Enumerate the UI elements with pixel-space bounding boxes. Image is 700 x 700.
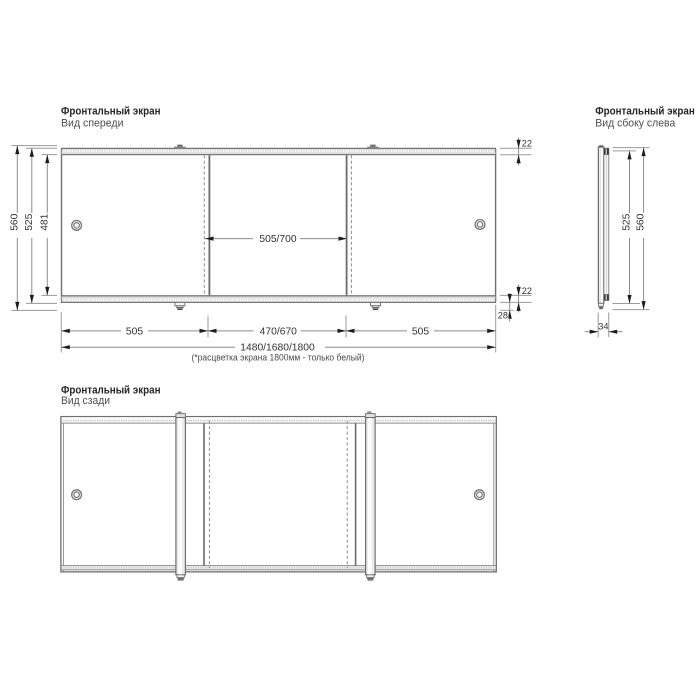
svg-text:505/700: 505/700 [259,234,296,245]
svg-text:34: 34 [598,322,608,332]
svg-text:28: 28 [498,311,508,321]
svg-text:505: 505 [126,326,143,337]
svg-text:525: 525 [622,213,633,230]
svg-text:Вид сзади: Вид сзади [61,395,110,407]
svg-text:470/670: 470/670 [260,327,297,338]
svg-text:505: 505 [412,326,429,337]
svg-text:(*расцветка экрана 1800мм - то: (*расцветка экрана 1800мм - только белый… [192,352,365,363]
svg-text:525: 525 [24,213,35,230]
svg-text:481: 481 [39,213,50,230]
svg-text:22: 22 [522,286,532,296]
svg-text:Фронтальный экран: Фронтальный экран [595,106,695,118]
svg-text:Вид сбоку слева: Вид сбоку слева [595,117,676,129]
svg-text:22: 22 [522,138,532,148]
svg-text:560: 560 [636,213,647,230]
svg-text:Вид спереди: Вид спереди [61,117,124,129]
svg-text:Фронтальный экран: Фронтальный экран [61,106,161,118]
svg-text:560: 560 [9,213,20,230]
